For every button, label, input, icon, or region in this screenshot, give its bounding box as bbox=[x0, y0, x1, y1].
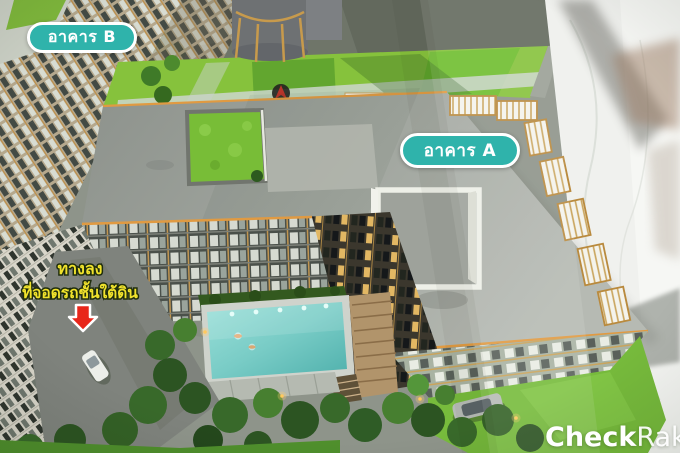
building-b-label: อาคาร B bbox=[48, 25, 116, 50]
svg-text:ที่จอดรถชั้นใต้ดิน: ที่จอดรถชั้นใต้ดิน bbox=[22, 281, 138, 302]
condo-model-aerial-photo: N bbox=[0, 0, 680, 453]
building-a-label: อาคาร A bbox=[424, 137, 496, 164]
building-a-badge: อาคาร A bbox=[400, 133, 520, 168]
watermark-bold: Check bbox=[545, 422, 636, 453]
scale-model-aerial-view: N bbox=[0, 0, 680, 453]
svg-text:ทางลง: ทางลง bbox=[58, 259, 103, 278]
watermark-light: Raka bbox=[636, 422, 680, 453]
vignette bbox=[0, 0, 680, 453]
checkraka-watermark: CheckRaka bbox=[545, 422, 680, 453]
building-b-badge: อาคาร B bbox=[27, 22, 137, 53]
